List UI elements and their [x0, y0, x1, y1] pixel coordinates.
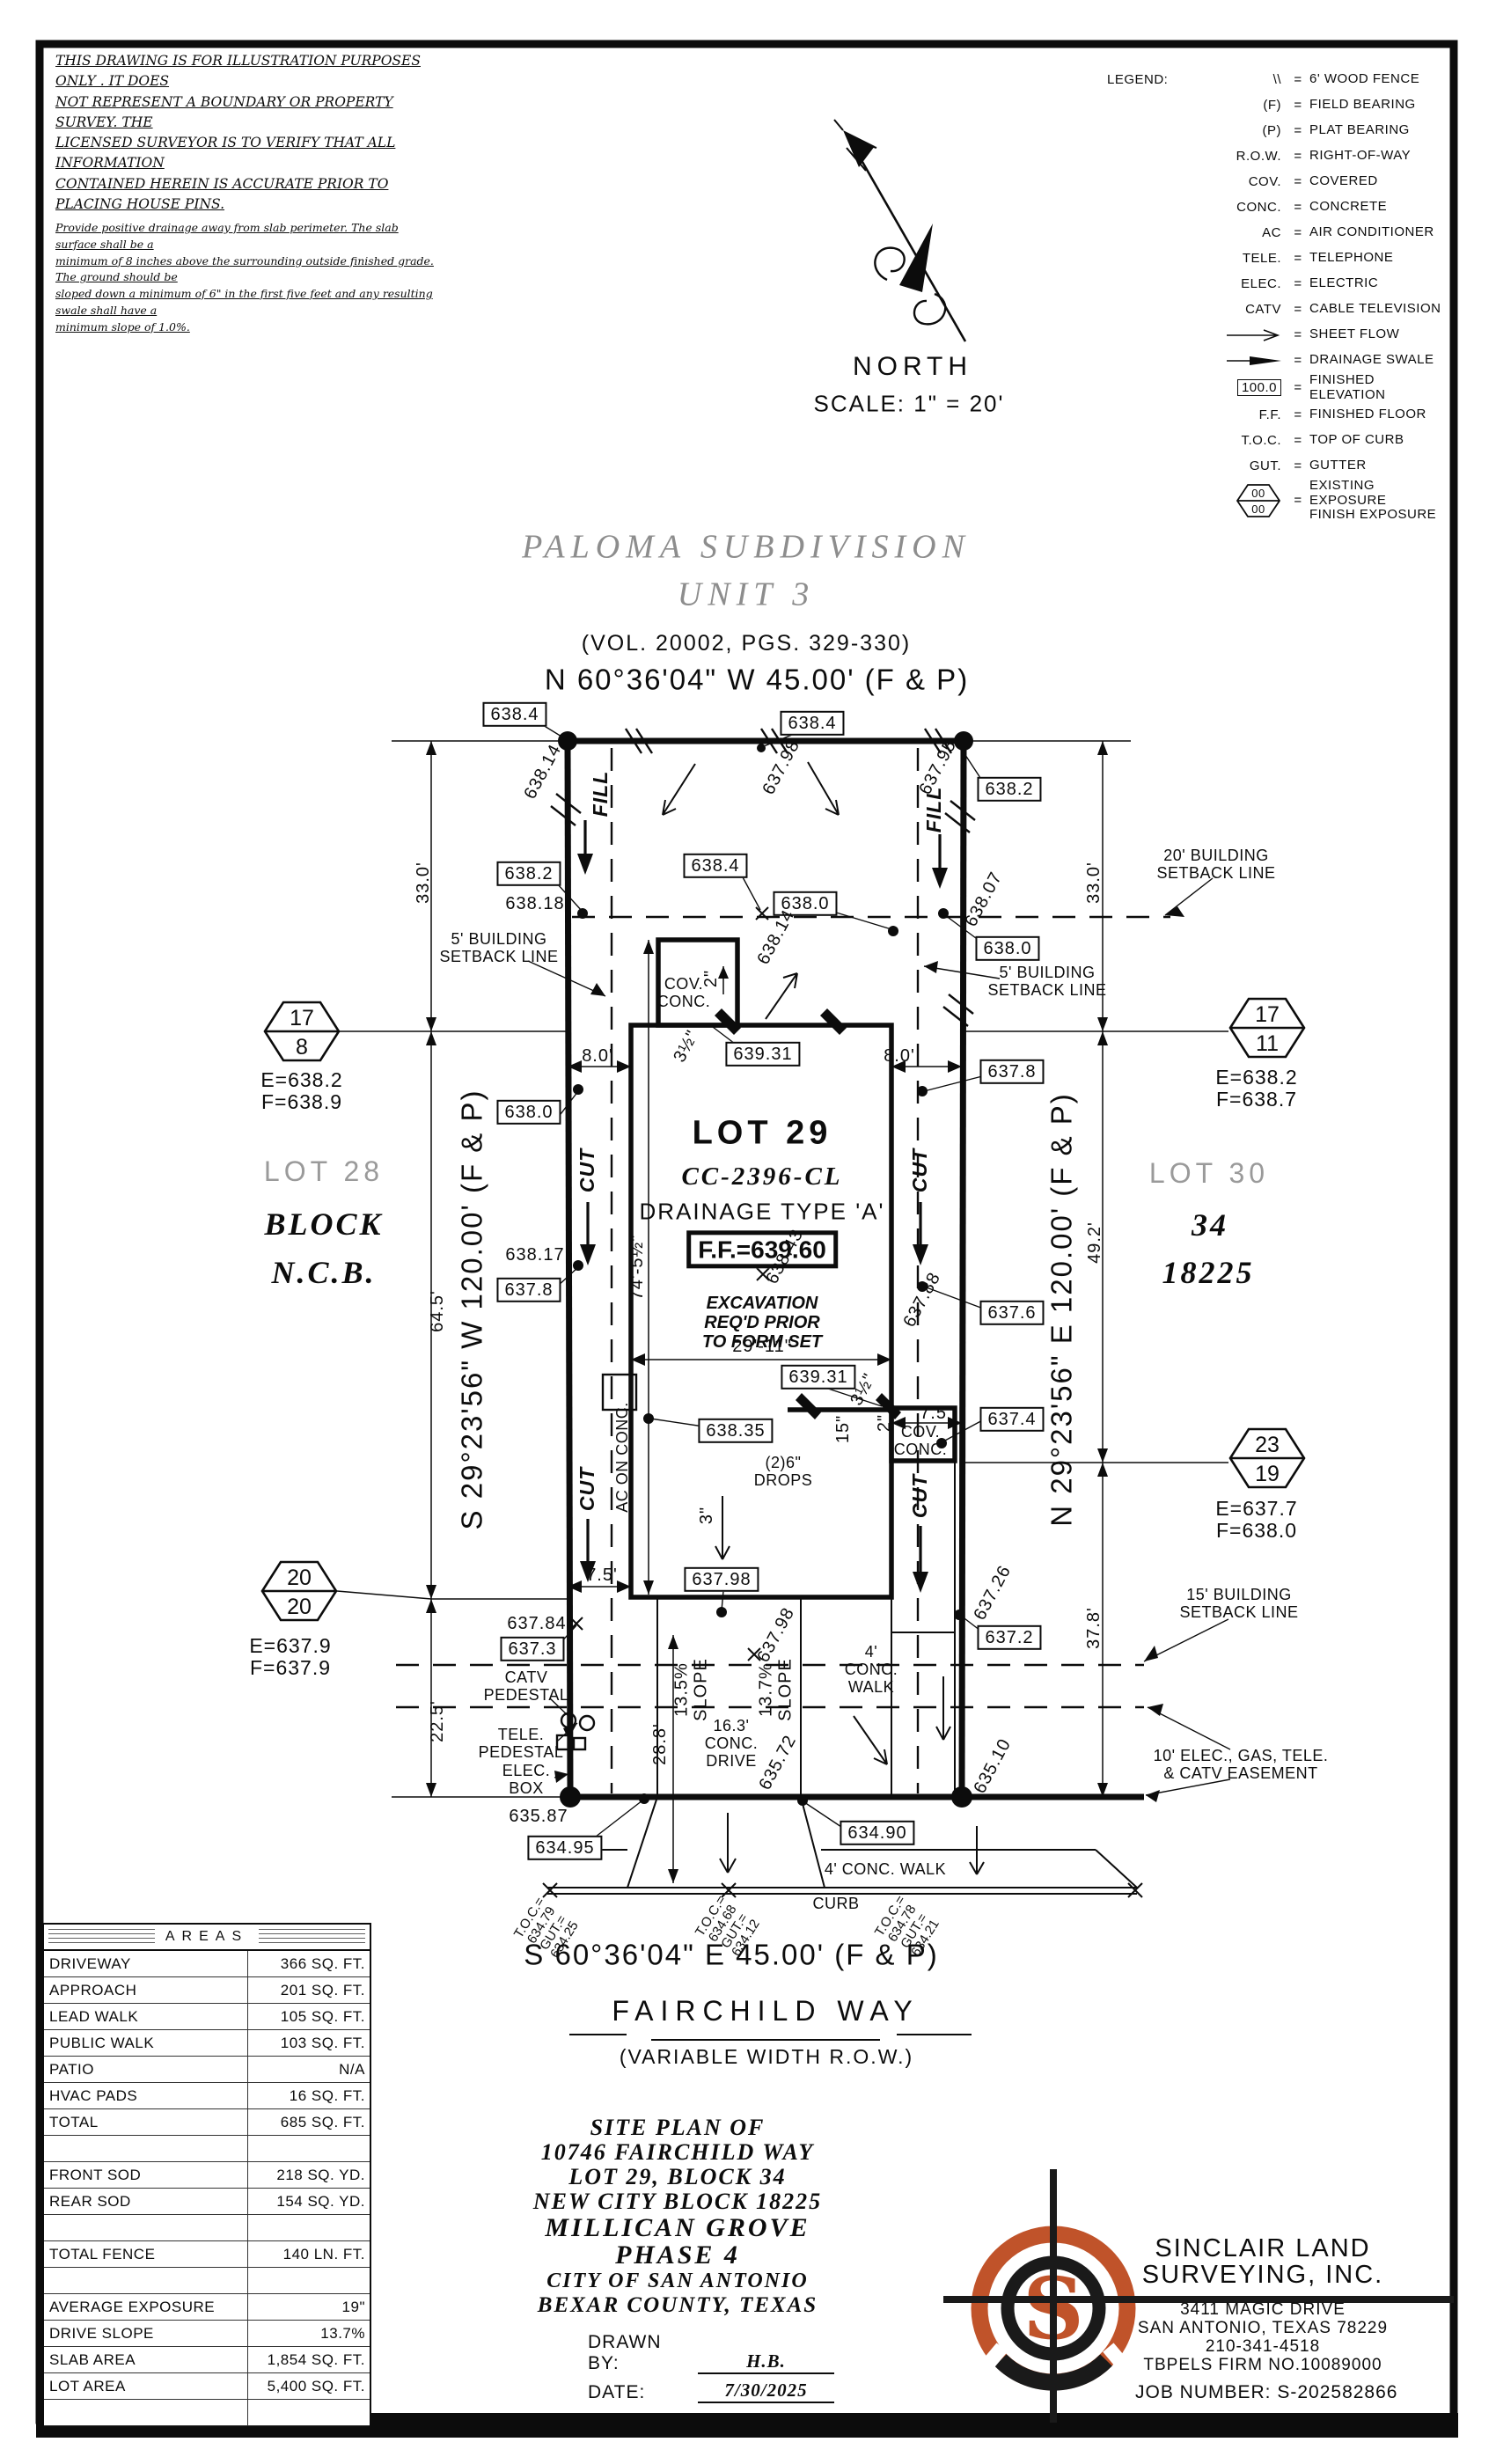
title-line: SITE PLAN OF — [488, 2116, 867, 2140]
areas-table-title: AREAS — [44, 1925, 370, 1951]
disclaimer-paragraph-2: Provide positive drainage away from slab… — [55, 220, 434, 335]
legend-row: (F)=FIELD BEARING — [1107, 92, 1452, 118]
legend-equals: = — [1287, 433, 1309, 448]
areas-row-value: 103 SQ. FT. — [248, 2030, 370, 2056]
legend-definition: CONCRETE — [1309, 200, 1452, 215]
legend-definition: GUTTER — [1309, 458, 1452, 473]
plat-label: 15" — [833, 1415, 853, 1443]
legend-equals: = — [1287, 458, 1309, 473]
plat-label: F=638.0 — [1216, 1520, 1297, 1543]
areas-row-value: 16 SQ. FT. — [248, 2083, 370, 2108]
areas-table-row: LOT AREA5,400 SQ. FT. — [44, 2373, 370, 2400]
legend-definition: 6' WOOD FENCE — [1309, 72, 1452, 87]
legend-definition: FINISHED FLOOR — [1309, 407, 1452, 422]
title-line: BEXAR COUNTY, TEXAS — [488, 2293, 867, 2318]
neighbor-lot-west: LOT 28 — [264, 1156, 384, 1188]
areas-row-value — [248, 2215, 370, 2240]
plat-label: 8.0' — [884, 1046, 915, 1066]
areas-table-row: SLAB AREA1,854 SQ. FT. — [44, 2347, 370, 2373]
elec-box: ELEC. BOX — [502, 1762, 551, 1797]
plat-volume: (VOL. 20002, PGS. 329-330) — [582, 631, 911, 656]
areas-table-row: AVERAGE EXPOSURE19" — [44, 2294, 370, 2321]
legend-equals: = — [1287, 380, 1309, 395]
ncb-label: N.C.B. — [271, 1255, 376, 1290]
plat-label: FILL — [590, 771, 612, 818]
plat-label: E=638.2 — [1215, 1067, 1297, 1089]
areas-table: AREAS DRIVEWAY366 SQ. FT.APPROACH201 SQ.… — [42, 1923, 371, 2426]
sheet-flow-arrow-icon — [1177, 328, 1287, 342]
legend-row: 0000=EXISTING EXPOSURE FINISH EXPOSURE — [1107, 479, 1452, 523]
areas-row-label: LEAD WALK — [44, 2004, 248, 2029]
plat-label: CUT — [576, 1148, 599, 1192]
utility-easement: 10' ELEC., GAS, TELE. & CATV EASEMENT — [1154, 1747, 1329, 1782]
plat-label: 638.0 — [975, 936, 1039, 961]
plat-label: 2" — [875, 1414, 894, 1432]
field-bearing-symbol: (F) — [1177, 98, 1287, 113]
surveyor-name-2: SURVEYING, INC. — [1135, 2262, 1390, 2288]
areas-row-value: 366 SQ. FT. — [248, 1951, 370, 1976]
surveyor-block: SINCLAIR LAND SURVEYING, INC. 3411 MAGIC… — [1135, 2235, 1390, 2403]
areas-row-value: 19" — [248, 2294, 370, 2320]
street-underlines — [569, 2035, 972, 2040]
legend-equals: = — [1287, 72, 1309, 87]
areas-table-row — [44, 2136, 370, 2162]
areas-row-value — [248, 2268, 370, 2293]
legend-definition: EXISTING EXPOSURE FINISH EXPOSURE — [1309, 479, 1452, 523]
plat-label: 23 — [1255, 1433, 1280, 1457]
surveyor-job-number: JOB NUMBER: S-202582866 — [1135, 2382, 1390, 2403]
plat-label: 13.5% SLOPE — [672, 1658, 712, 1721]
legend-title: LEGEND: — [1107, 72, 1177, 87]
plat-label: CUT — [909, 1474, 932, 1518]
catv-pedestal: CATV PEDESTAL — [484, 1668, 569, 1704]
areas-row-label: REAR SOD — [44, 2189, 248, 2214]
north-arrow-icon — [834, 120, 965, 341]
drawn-by-label: DRAWN BY: — [588, 2332, 698, 2374]
conc-walk-private: 4' CONC. WALK — [845, 1643, 898, 1696]
title-line: LOT 29, BLOCK 34 — [488, 2165, 867, 2189]
plat-label: CUT — [909, 1148, 932, 1192]
conc-walk-public: 4' CONC. WALK — [825, 1860, 946, 1878]
title-line: MILLICAN GROVE — [488, 2214, 867, 2241]
legend-row: COV.=COVERED — [1107, 169, 1452, 194]
areas-table-row: DRIVE SLOPE13.7% — [44, 2321, 370, 2347]
bearing-west: S 29°23'56" W 120.00' (F & P) — [457, 1089, 489, 1530]
plat-label: 637.3 — [500, 1637, 564, 1661]
fence-hatch-marks — [551, 729, 975, 1026]
plat-label: F=638.7 — [1216, 1089, 1297, 1111]
areas-row-label: SLAB AREA — [44, 2347, 248, 2372]
legend-definition: ELECTRIC — [1309, 276, 1452, 291]
legend-definition: DRAINAGE SWALE — [1309, 353, 1452, 368]
areas-row-value: 685 SQ. FT. — [248, 2109, 370, 2135]
conc-abbrev: CONC. — [1177, 200, 1287, 215]
legend-equals: = — [1287, 327, 1309, 342]
plat-label: 638.0 — [496, 1100, 561, 1125]
drainage-type: DRAINAGE TYPE 'A' — [640, 1199, 885, 1224]
plat-label: 8 — [296, 1035, 308, 1060]
plat-label: F=638.9 — [261, 1091, 342, 1114]
plat-label: 8.0' — [582, 1046, 613, 1066]
plat-bearing-symbol: (P) — [1177, 123, 1287, 138]
legend-row: =DRAINAGE SWALE — [1107, 348, 1452, 373]
legend-equals: = — [1287, 407, 1309, 422]
areas-row-label — [44, 2215, 248, 2240]
surveyor-address-2: SAN ANTONIO, TEXAS 78229 — [1135, 2319, 1390, 2337]
areas-row-value: 154 SQ. YD. — [248, 2189, 370, 2214]
plat-label: 637.2 — [977, 1625, 1041, 1650]
areas-row-label: TOTAL FENCE — [44, 2241, 248, 2267]
surveyor-firm: TBPELS FIRM NO.10089000 — [1135, 2356, 1390, 2374]
plat-label: 637.6 — [979, 1301, 1044, 1325]
plat-label: E=638.2 — [260, 1069, 342, 1092]
areas-table-title-text: AREAS — [155, 1929, 259, 1944]
plat-label: 638.4 — [780, 711, 844, 736]
areas-table-row: TOTAL685 SQ. FT. — [44, 2109, 370, 2136]
setback-15: 15' BUILDING SETBACK LINE — [1179, 1586, 1298, 1621]
legend-equals: = — [1287, 302, 1309, 317]
ff-abbrev: F.F. — [1177, 407, 1287, 422]
tele-abbrev: TELE. — [1177, 251, 1287, 266]
title-line: 10746 FAIRCHILD WAY — [488, 2140, 867, 2165]
plat-label: 20 — [287, 1566, 312, 1590]
disclaimer-paragraph-1: THIS DRAWING IS FOR ILLUSTRATION PURPOSE… — [55, 51, 434, 215]
areas-row-label: AVERAGE EXPOSURE — [44, 2294, 248, 2320]
date-value: 7/30/2025 — [698, 2380, 834, 2403]
legend-equals: = — [1287, 200, 1309, 215]
plat-label: 638.17 — [505, 1245, 564, 1265]
title-line: NEW CITY BLOCK 18225 — [488, 2189, 867, 2214]
wood-fence-symbol: \\ — [1177, 72, 1287, 87]
plat-label: 639.31 — [781, 1365, 855, 1390]
legend-definition: COVERED — [1309, 174, 1452, 189]
areas-row-label: DRIVEWAY — [44, 1951, 248, 1976]
bearing-east: N 29°23'56" E 120.00' (F & P) — [1046, 1092, 1079, 1527]
areas-row-value — [248, 2400, 370, 2425]
plat-label: 637.4 — [979, 1407, 1044, 1432]
gut-abbrev: GUT. — [1177, 458, 1287, 473]
plat-label: 638.35 — [698, 1419, 773, 1443]
legend-equals: = — [1287, 251, 1309, 266]
legend-definition: TELEPHONE — [1309, 251, 1452, 266]
finished-floor: F.F.=639.60 — [686, 1230, 838, 1268]
plat-label: 17 — [1255, 1002, 1280, 1027]
plat-label: 28.8' — [650, 1723, 670, 1765]
areas-table-row: PUBLIC WALK103 SQ. FT. — [44, 2030, 370, 2057]
legend-row: R.O.W.=RIGHT-OF-WAY — [1107, 143, 1452, 169]
neighbor-lot-east: LOT 30 — [1149, 1158, 1269, 1190]
areas-row-value — [248, 2136, 370, 2161]
areas-row-value: 5,400 SQ. FT. — [248, 2373, 370, 2399]
plat-label: 37.8' — [1084, 1607, 1104, 1649]
plat-label: F=637.9 — [250, 1657, 331, 1680]
legend-equals: = — [1287, 493, 1309, 508]
svg-text:00: 00 — [1251, 502, 1265, 516]
legend-row: 100.0=FINISHED ELEVATION — [1107, 373, 1452, 402]
drainage-swale-arrow-icon — [1177, 354, 1287, 368]
areas-table-row: PATION/A — [44, 2057, 370, 2083]
subdivision-title: PALOMA SUBDIVISION — [522, 529, 971, 567]
title-block: SITE PLAN OF 10746 FAIRCHILD WAY LOT 29,… — [488, 2116, 867, 2318]
title-line: CITY OF SAN ANTONIO — [488, 2269, 867, 2293]
legend-row: GUT.=GUTTER — [1107, 453, 1452, 479]
plat-label: 3" — [697, 1507, 716, 1524]
plat-label: 635.87 — [509, 1807, 568, 1826]
areas-table-row: DRIVEWAY366 SQ. FT. — [44, 1951, 370, 1977]
tele-pedestal: TELE. PEDESTAL — [479, 1726, 564, 1761]
legend-row: F.F.=FINISHED FLOOR — [1107, 402, 1452, 428]
plat-label: 29'-11" — [732, 1337, 792, 1356]
surveyor-name-1: SINCLAIR LAND — [1135, 2235, 1390, 2262]
legend-equals: = — [1287, 225, 1309, 240]
drawn-by-block: DRAWN BY: H.B. DATE: 7/30/2025 — [588, 2332, 834, 2409]
plat-label: 638.4 — [683, 854, 747, 878]
areas-row-label: LOT AREA — [44, 2373, 248, 2399]
areas-row-label: DRIVE SLOPE — [44, 2321, 248, 2346]
areas-table-row: TOTAL FENCE140 LN. FT. — [44, 2241, 370, 2268]
legend-row: LEGEND:\\=6' WOOD FENCE — [1107, 67, 1452, 92]
legend-row: =SHEET FLOW — [1107, 322, 1452, 348]
ac-on-conc: AC ON CONC. — [613, 1402, 631, 1513]
setback-5-left: 5' BUILDING SETBACK LINE — [439, 930, 558, 965]
areas-row-label: HVAC PADS — [44, 2083, 248, 2108]
plat-label: 22.5' — [428, 1700, 447, 1742]
surveyor-address-1: 3411 MAGIC DRIVE — [1135, 2300, 1390, 2319]
plat-label: 17 — [290, 1006, 314, 1030]
elec-abbrev: ELEC. — [1177, 276, 1287, 291]
plat-label: 638.2 — [977, 777, 1041, 802]
catv-abbrev: CATV — [1177, 302, 1287, 317]
covered-concrete-front: COV. CONC. — [657, 975, 711, 1010]
legend: LEGEND:\\=6' WOOD FENCE(F)=FIELD BEARING… — [1107, 67, 1452, 523]
finished-elevation-box: 100.0 — [1177, 379, 1287, 396]
legend-row: (P)=PLAT BEARING — [1107, 118, 1452, 143]
legend-equals: = — [1287, 149, 1309, 164]
legend-equals: = — [1287, 174, 1309, 189]
areas-table-row: HVAC PADS16 SQ. FT. — [44, 2083, 370, 2109]
toc-abbrev: T.O.C. — [1177, 433, 1287, 448]
areas-row-label: APPROACH — [44, 1977, 248, 2003]
north-label: NORTH — [853, 352, 972, 382]
site-plan-sheet: S PALOMA SUBDIVISIONUNIT 3(VOL. 20002, P… — [0, 0, 1496, 2464]
legend-row: CATV=CABLE TELEVISION — [1107, 297, 1452, 322]
areas-row-value: 201 SQ. FT. — [248, 1977, 370, 2003]
plat-label: E=637.7 — [1215, 1498, 1297, 1521]
scale-label: SCALE: 1" = 20' — [814, 391, 1005, 416]
lot-plan-code: CC-2396-CL — [681, 1162, 842, 1191]
plat-label: E=637.9 — [249, 1635, 331, 1658]
areas-row-label: PUBLIC WALK — [44, 2030, 248, 2056]
legend-row: ELEC.=ELECTRIC — [1107, 271, 1452, 297]
block-number: 34 — [1192, 1207, 1228, 1243]
plat-label: 13.7% SLOPE — [757, 1658, 796, 1721]
legend-equals: = — [1287, 353, 1309, 368]
plat-label: 11 — [1256, 1031, 1279, 1056]
plat-label: 637.98 — [684, 1567, 759, 1592]
legend-definition: CABLE TELEVISION — [1309, 302, 1452, 317]
legend-definition: RIGHT-OF-WAY — [1309, 149, 1452, 164]
plat-label: 638.2 — [496, 862, 561, 886]
ncb-number: 18225 — [1162, 1255, 1255, 1290]
ac-abbrev: AC — [1177, 225, 1287, 240]
areas-row-label: TOTAL — [44, 2109, 248, 2135]
areas-row-value: 1,854 SQ. FT. — [248, 2347, 370, 2372]
areas-row-value: 105 SQ. FT. — [248, 2004, 370, 2029]
bearing-north: N 60°36'04" W 45.00' (F & P) — [545, 664, 969, 697]
legend-row: AC=AIR CONDITIONER — [1107, 220, 1452, 246]
plat-label: 637.8 — [496, 1278, 561, 1302]
legend-equals: = — [1287, 98, 1309, 113]
legend-definition: TOP OF CURB — [1309, 433, 1452, 448]
setback-20: 20' BUILDING SETBACK LINE — [1156, 847, 1275, 882]
legend-definition: FINISHED ELEVATION — [1309, 373, 1452, 402]
areas-table-row: FRONT SOD218 SQ. YD. — [44, 2162, 370, 2189]
street-name: FAIRCHILD WAY — [612, 1996, 919, 2028]
areas-row-value: N/A — [248, 2057, 370, 2082]
drops-note: (2)6" DROPS — [754, 1454, 813, 1489]
legend-definition: FIELD BEARING — [1309, 98, 1452, 113]
covered-concrete-rear: COV. CONC. — [894, 1423, 948, 1458]
legend-row: TELE.=TELEPHONE — [1107, 246, 1452, 271]
plat-label: CUT — [576, 1467, 599, 1511]
plat-label: 49.2' — [1085, 1221, 1104, 1264]
areas-table-row: REAR SOD154 SQ. YD. — [44, 2189, 370, 2215]
plat-label: 20 — [287, 1595, 312, 1619]
conc-drive: 16.3' CONC. DRIVE — [705, 1717, 759, 1770]
legend-equals: = — [1287, 123, 1309, 138]
surveyor-phone: 210-341-4518 — [1135, 2337, 1390, 2356]
plat-label: 64.5' — [428, 1290, 447, 1332]
plat-label: 638.4 — [482, 702, 546, 727]
plat-label: 634.90 — [840, 1821, 914, 1845]
plat-label: 639.31 — [725, 1042, 800, 1067]
title-line: PHASE 4 — [488, 2241, 867, 2269]
row-abbrev: R.O.W. — [1177, 149, 1287, 164]
areas-table-row — [44, 2400, 370, 2426]
setback-5-right: 5' BUILDING SETBACK LINE — [987, 964, 1106, 999]
cov-abbrev: COV. — [1177, 174, 1287, 189]
legend-definition: SHEET FLOW — [1309, 327, 1452, 342]
drawn-by-value: H.B. — [698, 2350, 834, 2374]
plat-label: 637.8 — [979, 1060, 1044, 1084]
plat-label: 634.95 — [527, 1836, 602, 1860]
plat-label: 33.0' — [1084, 862, 1104, 904]
areas-table-row — [44, 2215, 370, 2241]
legend-row: T.O.C.=TOP OF CURB — [1107, 428, 1452, 453]
exposure-hexagon-icon: 0000 — [1177, 482, 1287, 519]
legend-equals: = — [1287, 276, 1309, 291]
plat-label: 637.84 — [507, 1614, 566, 1633]
street-row: (VARIABLE WIDTH R.O.W.) — [620, 2046, 913, 2069]
areas-row-label: FRONT SOD — [44, 2162, 248, 2188]
areas-row-label — [44, 2400, 248, 2425]
lot-number: LOT 29 — [693, 1115, 832, 1153]
curb-label: CURB — [812, 1895, 859, 1912]
areas-row-value: 13.7% — [248, 2321, 370, 2346]
areas-row-value: 218 SQ. YD. — [248, 2162, 370, 2188]
svg-text:00: 00 — [1251, 487, 1265, 500]
subdivision-unit: UNIT 3 — [678, 576, 815, 614]
areas-row-label — [44, 2136, 248, 2161]
legend-definition: AIR CONDITIONER — [1309, 225, 1452, 240]
plat-label: 638.18 — [505, 894, 564, 913]
legend-definition: PLAT BEARING — [1309, 123, 1452, 138]
plat-label: 74'-5½" — [627, 1235, 647, 1301]
areas-row-value: 140 LN. FT. — [248, 2241, 370, 2267]
plat-label: 33.0' — [414, 862, 433, 904]
plat-label: FILL — [923, 787, 946, 833]
areas-row-label: PATIO — [44, 2057, 248, 2082]
areas-table-row: APPROACH201 SQ. FT. — [44, 1977, 370, 2004]
areas-row-label — [44, 2268, 248, 2293]
block-label: BLOCK — [264, 1206, 383, 1242]
date-label: DATE: — [588, 2382, 698, 2403]
disclaimer-note: THIS DRAWING IS FOR ILLUSTRATION PURPOSE… — [55, 51, 434, 335]
legend-row: CONC.=CONCRETE — [1107, 194, 1452, 220]
plat-label: 7.5' — [920, 1404, 951, 1423]
plat-label: 7.5' — [586, 1566, 618, 1585]
areas-table-row — [44, 2268, 370, 2294]
areas-table-row: LEAD WALK105 SQ. FT. — [44, 2004, 370, 2030]
plat-label: 19 — [1255, 1462, 1280, 1486]
